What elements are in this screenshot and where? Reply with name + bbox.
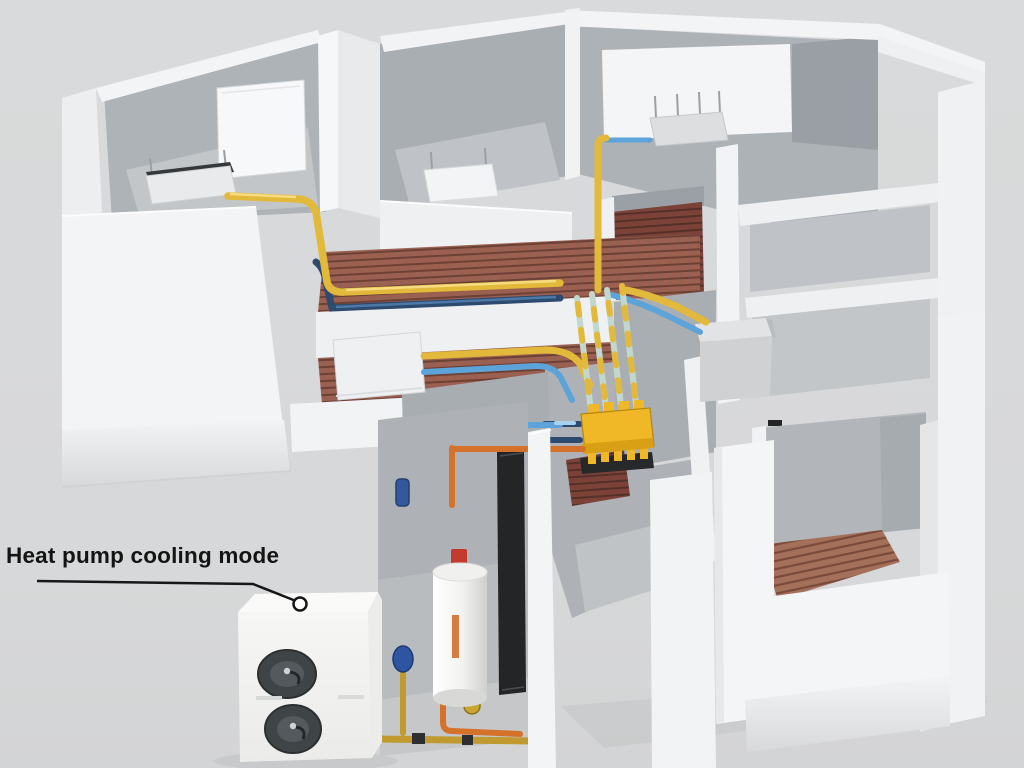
- circulation-pump: [396, 479, 409, 506]
- leader-marker-circle: [294, 598, 307, 611]
- fan-coil-unit-d: [333, 332, 425, 400]
- dhw-tank: [433, 549, 487, 707]
- wall-east-outer-upper: [938, 80, 985, 316]
- wall-thermostat: [768, 420, 782, 426]
- distribution-manifold: [580, 400, 654, 474]
- pipe-fitting: [412, 733, 425, 744]
- heat-pump-fan: [258, 650, 316, 698]
- annotation-label: Heat pump cooling mode: [6, 543, 279, 568]
- fan-coil-unit-e: [695, 318, 776, 402]
- pipe-fitting: [462, 735, 473, 745]
- buffer-panel: [497, 449, 526, 695]
- heat-pump-badge: [256, 696, 282, 700]
- heat-pump-fan: [265, 705, 321, 753]
- heat-pump-outdoor-unit: [238, 592, 382, 762]
- wall-pillar-center: [318, 30, 338, 212]
- expansion-vessel: [393, 646, 413, 672]
- wall-west-outer: [62, 206, 284, 448]
- scene-heat-pump-cooling-diagram: Heat pump cooling mode: [0, 0, 1024, 768]
- tank-heating-element: [452, 615, 459, 658]
- house-cutaway-render: Heat pump cooling mode: [0, 0, 1024, 768]
- heat-pump-badge: [338, 695, 364, 699]
